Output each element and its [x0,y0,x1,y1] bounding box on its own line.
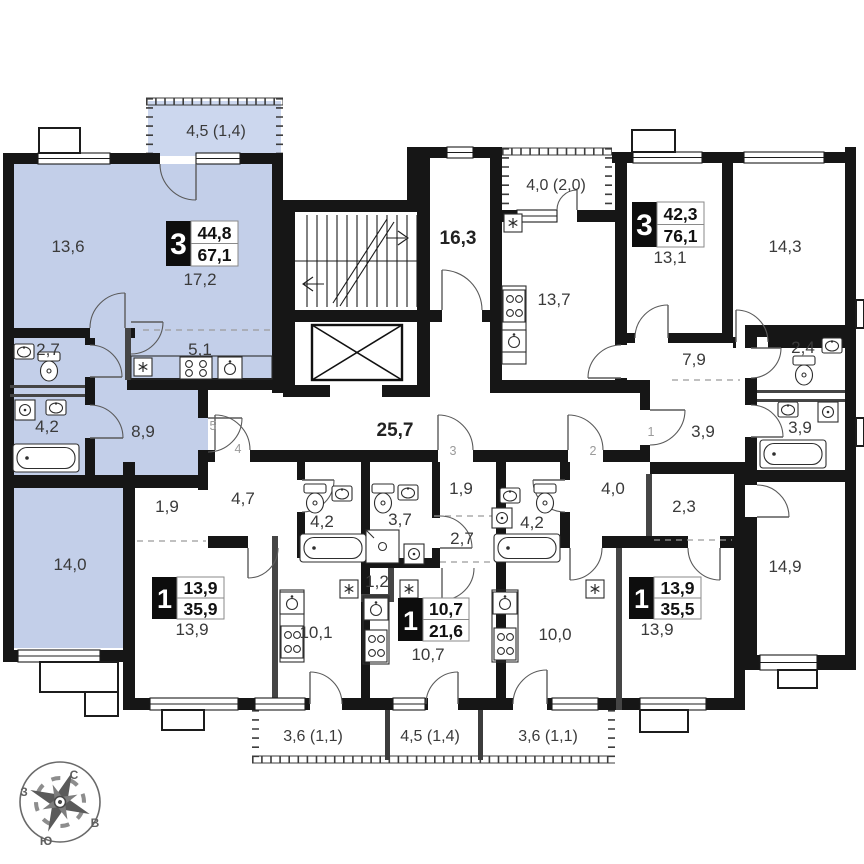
badge-living-area: 13,9 [183,578,217,598]
elevator [312,325,402,380]
kitchen-sink-icon [364,598,388,620]
room-label: 14,3 [768,237,801,256]
badge-living-area: 13,9 [660,578,694,598]
room-label: 1,9 [449,479,473,498]
door [513,670,547,704]
room-label: 4,2 [520,513,544,532]
badge-total-area: 21,6 [429,621,463,641]
door [568,415,603,450]
badge-living-area: 44,8 [197,223,231,243]
room-label: 3,6 (1,1) [283,728,343,745]
stove-icon [503,290,525,322]
vent-icon [400,580,418,598]
room-label: 7,9 [682,350,706,369]
washer-icon [818,402,838,422]
door-number: 1 [648,425,655,439]
window [760,655,817,670]
balcony-divider [478,710,483,760]
kitchen-sink-icon [280,592,304,614]
badge-room-count: 3 [170,228,187,261]
toilet-icon [304,484,326,513]
badge-room-count: 1 [403,606,418,636]
washer-icon [492,508,512,528]
room-label: 3,9 [788,418,812,437]
bathtub-icon [494,534,560,562]
bathtub-icon [300,534,366,562]
sink-icon [822,338,842,353]
room-label: 4,0 (2,0) [526,177,586,194]
room-label: 1,9 [155,497,179,516]
compass-rose: С З В Ю [18,760,101,848]
room-label: 17,2 [183,270,216,289]
sink-icon [14,344,34,359]
window [447,147,473,158]
washer-icon [15,400,35,420]
door [442,270,482,310]
badge-total-area: 76,1 [663,226,697,246]
apartment-badge-apt5: 3 44,8 67,1 [166,221,238,266]
bathtub-icon [13,444,79,472]
toilet-icon [534,484,556,513]
room-label: 4,5 (1,4) [400,728,460,745]
badge-room-count: 1 [157,584,172,614]
door [650,410,685,445]
window [255,698,305,710]
room-label: 4,0 [601,479,625,498]
badge-total-area: 35,9 [183,599,217,619]
door [757,485,789,517]
room-label: 13,6 [51,237,84,256]
washer-icon [404,544,424,564]
room-label: 3,6 (1,1) [518,728,578,745]
stove-icon [365,630,387,662]
room-label: 3,7 [388,510,412,529]
wall-tab [856,300,864,328]
room-label: 1,2 [365,572,389,591]
room-label: 4,5 (1,4) [186,123,246,140]
door [751,348,781,378]
room-label: 13,7 [537,290,570,309]
sink-icon [332,486,352,501]
sink-icon [398,485,418,500]
kitchen-sink-icon [493,592,517,614]
door [635,305,668,338]
entrance-porch [40,662,118,692]
window [18,650,100,662]
toilet-icon [372,484,394,513]
window [517,210,557,222]
ac-slab [640,710,688,732]
compass-west: З [20,785,28,799]
sink-icon [778,402,798,417]
window [552,698,598,710]
room-label: 13,9 [175,620,208,639]
floor-plan-drawing: 4,5 (1,4) 13,6 17,2 5,1 2,7 4,2 8,9 14,0… [0,0,864,864]
sink-icon [500,488,520,503]
sink-icon [46,400,66,415]
shower-icon [366,530,399,563]
badge-total-area: 67,1 [197,245,231,265]
room-label: 2,7 [450,529,474,548]
ac-slab [39,128,80,153]
wall-tab [856,418,864,446]
entrance-porch [85,692,118,716]
door-number: 2 [590,444,597,458]
room-label: 2,4 [791,338,815,357]
window [744,152,824,163]
badge-living-area: 42,3 [663,204,697,224]
window [640,698,706,710]
badge-total-area: 35,5 [660,599,694,619]
vent-icon [340,580,358,598]
room-label: 14,0 [53,555,86,574]
window [150,698,238,710]
room-label: 10,7 [411,645,444,664]
room-label: 4,2 [35,417,59,436]
room-label: 13,1 [653,248,686,267]
stair-arrow-down [303,277,324,291]
toilet-icon [793,356,815,385]
floor-plan-page: 4,5 (1,4) 13,6 17,2 5,1 2,7 4,2 8,9 14,0… [0,0,864,864]
ac-slab [162,710,204,730]
room-label: 2,3 [672,497,696,516]
room-label: 13,9 [640,620,673,639]
room-label: 14,9 [768,557,801,576]
apartment-badge-apt4: 1 13,9 35,9 [152,577,224,619]
room-label: 10,1 [299,623,332,642]
door [310,672,342,704]
room-label: 3,9 [691,422,715,441]
kitchen-sink-icon [218,357,242,379]
vent-icon [586,580,604,598]
badge-living-area: 10,7 [429,599,463,619]
compass-south: Ю [40,834,52,848]
apartment-badge-apt1: 3 42,3 76,1 [632,202,704,247]
kitchen-sink-icon [502,330,526,352]
door-number: 3 [450,444,457,458]
ac-slab [778,670,817,688]
compass-north: С [70,768,79,782]
door [215,415,250,450]
balcony-divider [385,710,390,760]
ac-slab [632,130,675,152]
room-label: 4,2 [310,512,334,531]
stove-icon [180,357,212,379]
room-label: 2,7 [36,340,60,359]
door [442,568,474,600]
room-label: 5,1 [188,340,212,359]
apartment-badge-apt2: 1 13,9 35,5 [629,577,701,619]
door [588,345,621,378]
door-number: 5 [210,419,217,433]
door [570,548,602,580]
room-label: 16,3 [440,228,477,249]
room-label: 4,7 [231,489,255,508]
door [426,672,458,704]
window [196,153,240,164]
compass-east: В [91,816,100,830]
room-label: 8,9 [131,422,155,441]
vent-icon [504,214,522,232]
apartment-badge-apt3: 1 10,7 21,6 [398,598,469,641]
vent-icon [134,358,152,376]
room-label: 25,7 [377,420,414,441]
window [38,153,110,164]
door-number: 4 [235,442,242,456]
badge-room-count: 1 [634,584,649,614]
window [633,152,702,163]
badge-room-count: 3 [636,209,653,242]
door [688,548,720,580]
bathtub-icon [760,440,826,468]
window [393,698,425,710]
stove-icon [494,628,516,660]
staircase [295,215,417,307]
room-label: 10,0 [538,625,571,644]
